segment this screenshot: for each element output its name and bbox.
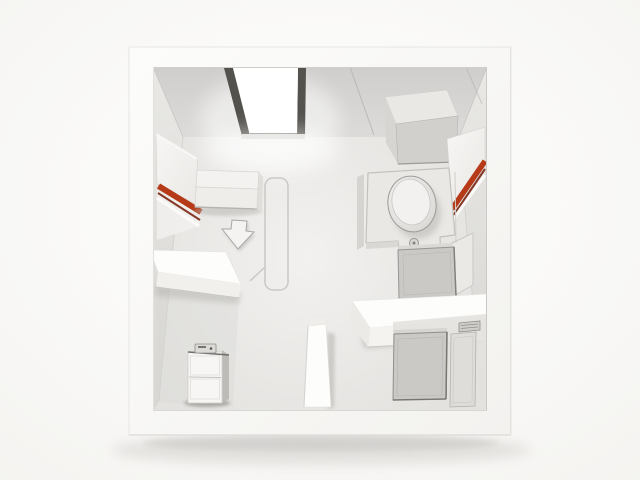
ceiling-cabinet bbox=[385, 90, 458, 164]
partition-face bbox=[304, 324, 331, 407]
appliance-right-edge bbox=[446, 332, 447, 399]
cabinet-gadget bbox=[195, 344, 216, 353]
gadget-dot bbox=[210, 347, 213, 350]
shadow-core bbox=[143, 435, 499, 451]
vent-grille bbox=[459, 321, 480, 332]
room-model-render bbox=[0, 0, 640, 480]
desk-front bbox=[195, 187, 258, 209]
skylight-lightpool bbox=[204, 128, 340, 176]
door-panel bbox=[450, 332, 476, 407]
storage-box bbox=[398, 243, 456, 299]
drawer-seam bbox=[189, 377, 221, 378]
drop-shadow bbox=[111, 435, 531, 465]
cabinet-side bbox=[222, 350, 229, 403]
vent-frame bbox=[459, 321, 480, 332]
appliance-bottom-shadow bbox=[393, 399, 446, 400]
desk bbox=[194, 170, 263, 216]
skylight-frame-right bbox=[297, 68, 306, 136]
platform-left-face bbox=[357, 174, 364, 250]
drawer-unit bbox=[184, 344, 230, 407]
appliance-box bbox=[393, 328, 447, 400]
desk-top bbox=[196, 170, 259, 189]
flush-button-dot bbox=[413, 242, 416, 245]
appliance-front bbox=[393, 332, 447, 400]
